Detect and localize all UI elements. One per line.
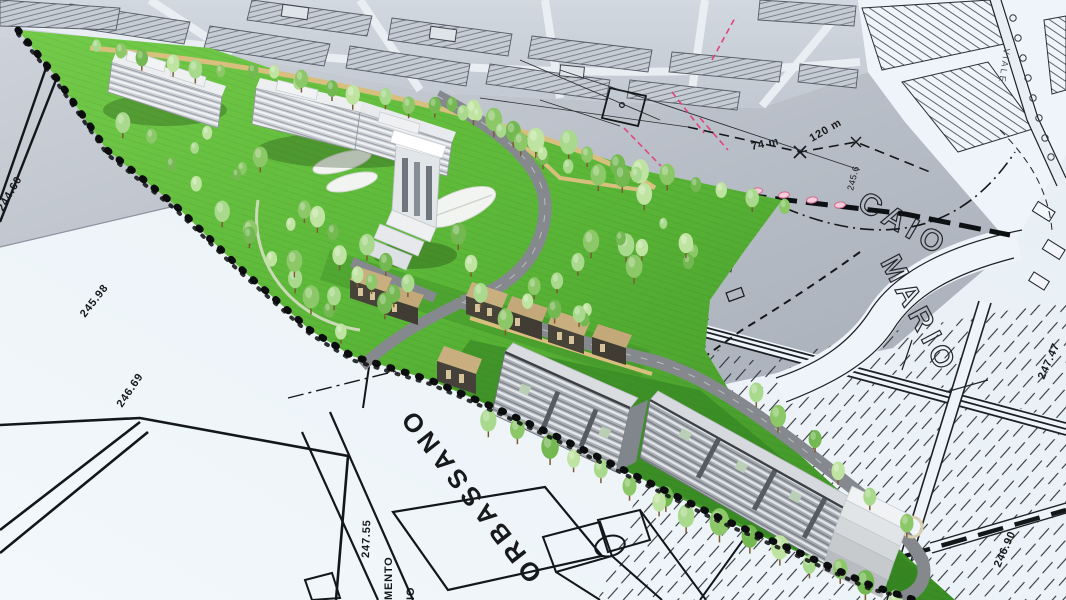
tree [551,272,563,289]
tree [480,409,496,432]
tree [136,49,148,66]
tree [115,43,126,59]
tree [327,286,341,305]
masterplan-render: VIALE CAIO MARIO 7 [0,0,1066,600]
tree [560,130,578,155]
tree [202,126,212,140]
tree [690,177,701,192]
tree [514,132,528,151]
tree [631,167,642,183]
tree [287,250,303,272]
tree [659,164,674,185]
tree [616,231,626,245]
tree [216,65,225,77]
tree [346,85,360,105]
tree [377,292,393,314]
tree [326,80,338,97]
tree [232,168,241,180]
tree [366,274,378,290]
tree [548,300,562,319]
tree [190,142,199,154]
tree [590,164,606,186]
tree [286,218,296,231]
tree [327,224,338,240]
tree [214,201,229,222]
tree [332,245,346,265]
tree [770,405,786,427]
tree [401,274,414,292]
tree [581,146,593,163]
tree [626,255,643,278]
tree [447,97,458,112]
tree [295,70,308,88]
tree [335,323,347,339]
tree [863,488,876,506]
tree [473,283,487,303]
tree [679,233,694,253]
tree [583,230,599,253]
tree [473,107,483,121]
tree [623,476,637,496]
tree [359,234,375,256]
tree [614,165,630,187]
tree [188,59,202,78]
tree [191,176,202,192]
tree [659,218,667,229]
tree [496,123,506,138]
tree [450,223,466,245]
tree [351,266,363,283]
tree [678,505,694,528]
tree [269,65,279,79]
tree [248,64,258,78]
tree [538,146,548,160]
tree [166,157,177,172]
tree [636,239,649,256]
tree [298,200,311,218]
tree [465,255,478,272]
tree [498,308,514,330]
tree [900,514,913,533]
tree [683,254,694,269]
tree [745,189,759,208]
tree [167,54,180,72]
tree [749,382,763,402]
tree [310,206,325,228]
tree [571,253,584,271]
tree [92,39,101,51]
partial-word-label-2: IO [405,587,417,600]
tree [652,493,666,512]
tree [402,96,415,113]
tree [243,227,255,244]
tree [379,253,392,272]
tree [573,305,586,322]
elevation-label-247-55: 247.55 [360,519,373,558]
tree [115,112,130,133]
tree [716,182,727,198]
tree [253,146,268,167]
tree [779,199,790,214]
tree [266,251,277,266]
tree [379,88,391,105]
tree [636,183,652,205]
tree [809,430,822,448]
tree [528,277,541,295]
tree [146,128,157,143]
tree [429,97,441,114]
tree [522,293,533,308]
tree [831,462,844,481]
partial-word-label-1: MENTO [383,556,395,600]
tree [563,159,573,173]
site-plan-canvas: VIALE CAIO MARIO 7 [0,0,1066,600]
tree [303,285,320,308]
tree [457,105,468,121]
